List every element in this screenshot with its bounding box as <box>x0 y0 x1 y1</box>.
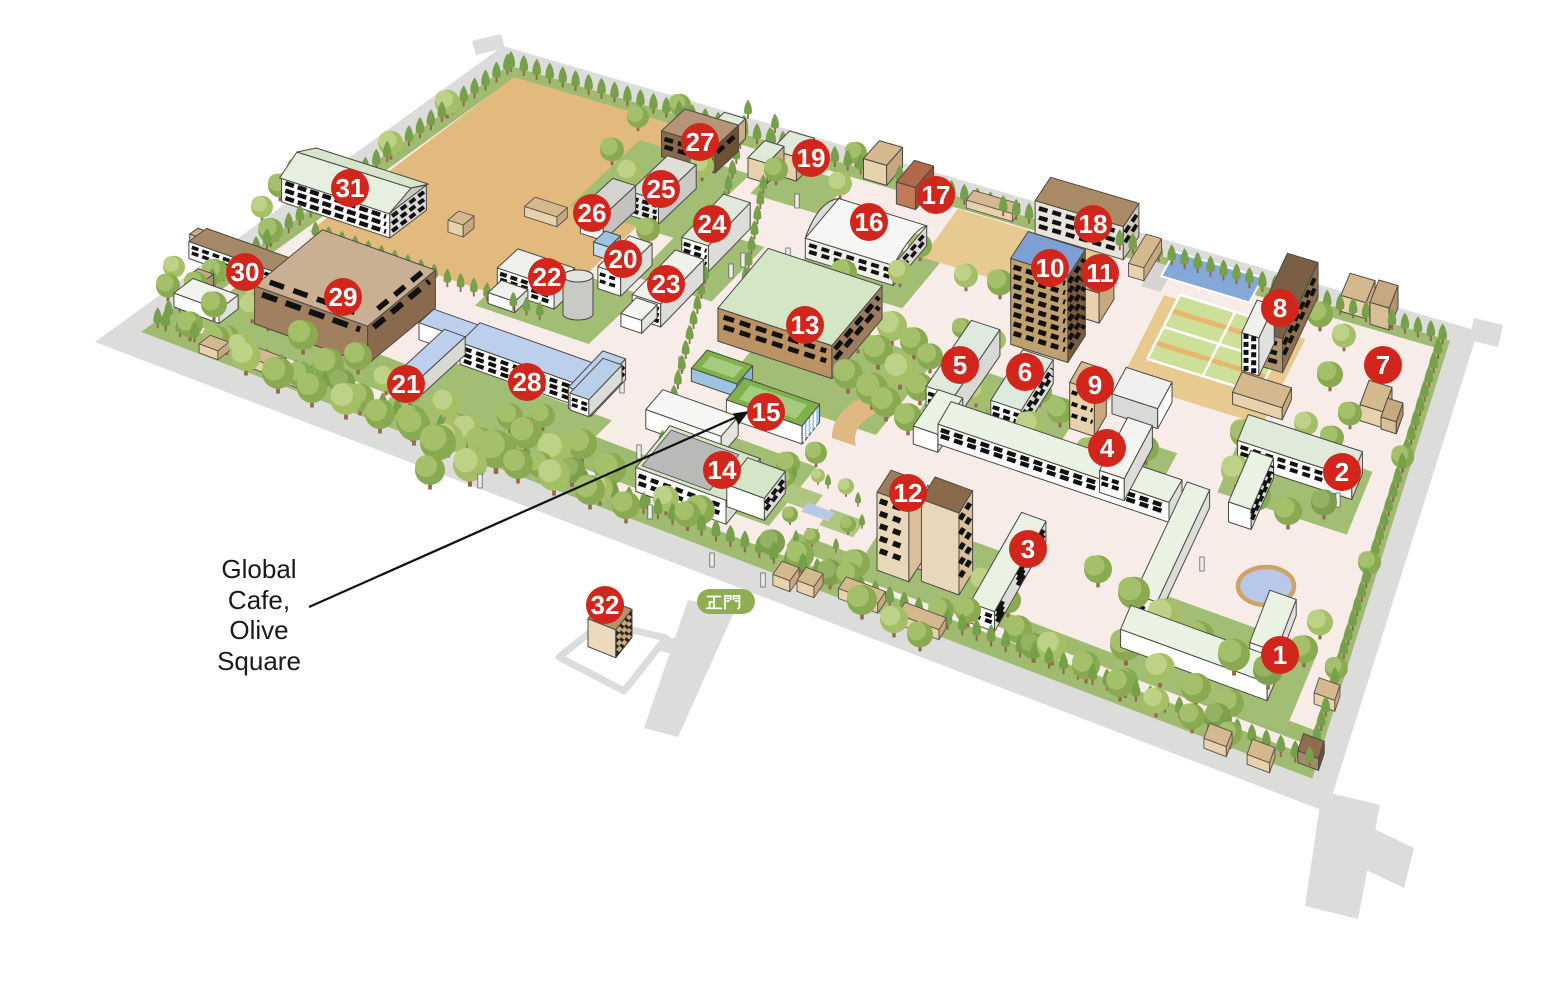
svg-text:24: 24 <box>698 209 727 239</box>
svg-text:27: 27 <box>686 127 715 157</box>
svg-text:5: 5 <box>953 350 967 380</box>
svg-text:7: 7 <box>1376 350 1390 380</box>
svg-text:28: 28 <box>513 367 542 397</box>
svg-text:8: 8 <box>1273 293 1287 323</box>
svg-text:25: 25 <box>647 174 676 204</box>
svg-text:Cafe,: Cafe, <box>228 585 290 615</box>
svg-text:31: 31 <box>336 173 365 203</box>
svg-text:30: 30 <box>231 257 260 287</box>
svg-text:13: 13 <box>791 310 820 340</box>
svg-text:18: 18 <box>1079 209 1108 239</box>
svg-text:Global: Global <box>221 554 296 584</box>
svg-text:15: 15 <box>752 397 781 427</box>
svg-text:21: 21 <box>392 369 421 399</box>
svg-text:12: 12 <box>894 478 923 508</box>
svg-text:17: 17 <box>922 180 951 210</box>
svg-text:22: 22 <box>533 262 562 292</box>
svg-text:29: 29 <box>329 282 358 312</box>
svg-text:19: 19 <box>797 143 826 173</box>
svg-text:14: 14 <box>708 455 737 485</box>
svg-text:16: 16 <box>855 207 884 237</box>
svg-text:6: 6 <box>1018 357 1032 387</box>
svg-text:20: 20 <box>609 244 638 274</box>
svg-text:1: 1 <box>1273 640 1287 670</box>
svg-text:Square: Square <box>217 646 301 676</box>
svg-text:3: 3 <box>1021 534 1035 564</box>
svg-text:4: 4 <box>1100 433 1115 463</box>
svg-text:26: 26 <box>578 198 607 228</box>
svg-text:10: 10 <box>1036 253 1065 283</box>
svg-text:11: 11 <box>1086 258 1114 288</box>
svg-text:9: 9 <box>1088 370 1102 400</box>
svg-text:32: 32 <box>591 590 620 620</box>
svg-text:23: 23 <box>652 269 681 299</box>
svg-text:2: 2 <box>1335 457 1349 487</box>
svg-text:Olive: Olive <box>229 615 288 645</box>
